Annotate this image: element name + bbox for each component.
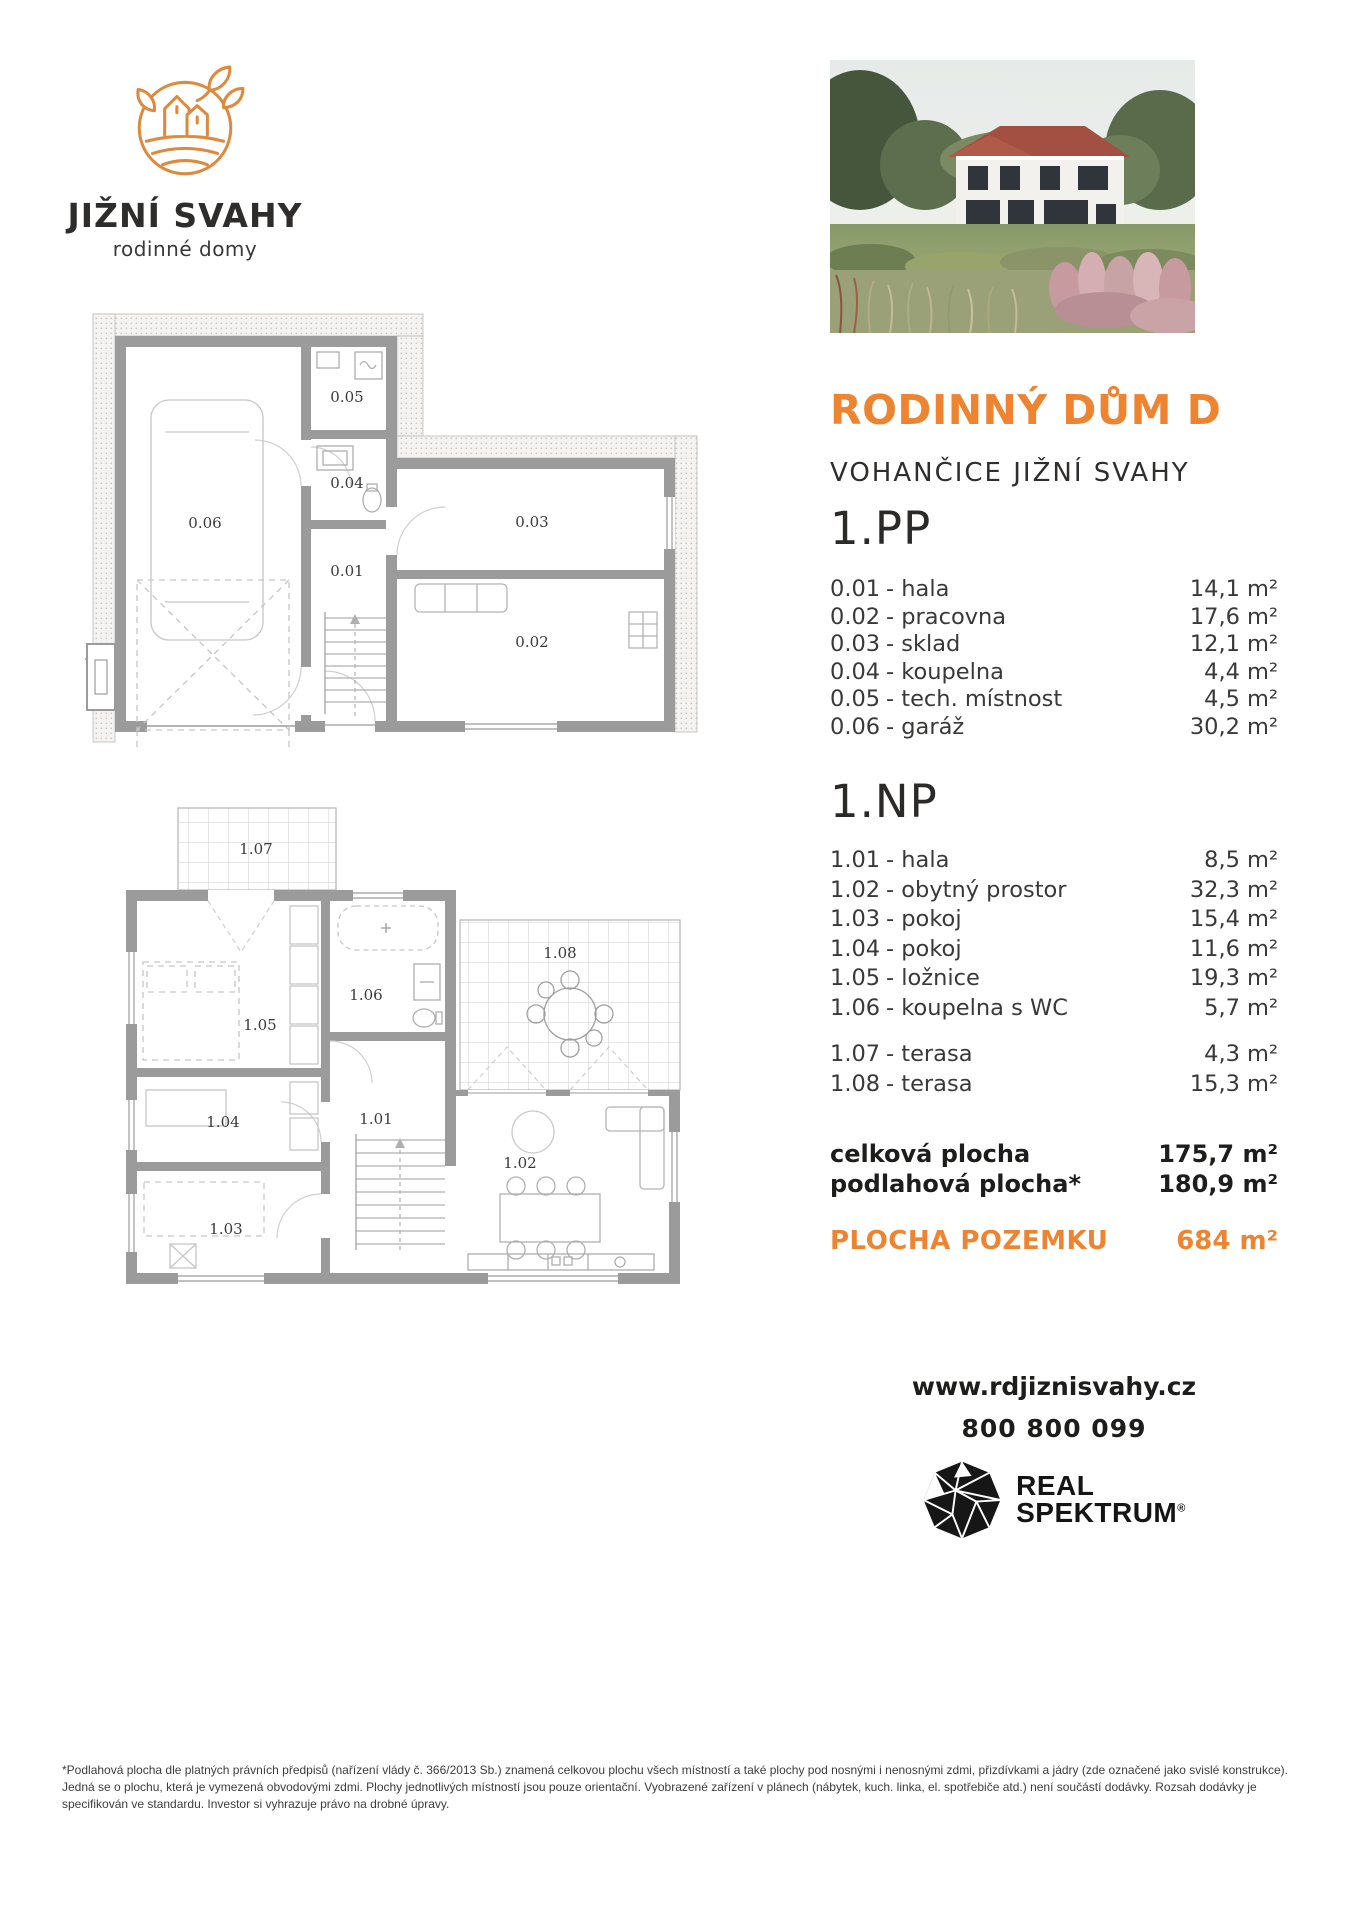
house-render (948, 126, 1130, 228)
openings (147, 440, 675, 732)
staircase-pp (325, 612, 386, 716)
room-area: 4,4 m² (1204, 659, 1278, 685)
room-code: 1.04 (830, 936, 886, 962)
room-row: 1.05- ložnice19,3 m² (830, 965, 1278, 995)
room-code: 1.01 (830, 847, 886, 873)
phone-number: 800 800 099 (830, 1414, 1278, 1443)
room-name: - hala (886, 847, 1204, 873)
room-code: 0.03 (830, 631, 886, 657)
toilet-icon (363, 484, 381, 512)
room-name: - ložnice (886, 965, 1190, 991)
total-area-row: celková plocha 175,7 m² (830, 1140, 1278, 1170)
room-area: 5,7 m² (1204, 995, 1278, 1021)
room-area: 4,5 m² (1204, 686, 1278, 712)
room-row: 1.08- terasa15,3 m² (830, 1071, 1278, 1101)
sofa-icon (606, 1107, 664, 1189)
registered-mark: ® (1177, 1503, 1186, 1515)
room-area: 30,2 m² (1190, 714, 1278, 740)
room-code: 1.06 (830, 995, 886, 1021)
plan-room-label: 0.03 (515, 513, 548, 531)
floor-heading-pp: 1.PP (830, 502, 1278, 555)
room-row: 1.06- koupelna s WC5,7 m² (830, 995, 1278, 1025)
totals-block: celková plocha 175,7 m² podlahová plocha… (830, 1140, 1278, 1200)
land-area-row: PLOCHA POZEMKU 684 m² (830, 1226, 1278, 1256)
room-area: 11,6 m² (1190, 936, 1278, 962)
room-row: 0.01- hala14,1 m² (830, 576, 1278, 604)
room-area: 15,4 m² (1190, 906, 1278, 932)
plan-room-label: 1.04 (206, 1113, 239, 1131)
toilet-icon (413, 1009, 442, 1027)
room-row: 1.04- pokoj11,6 m² (830, 936, 1278, 966)
desk-chair-icon (144, 1182, 264, 1268)
room-code: 0.04 (830, 659, 886, 685)
desk-icon (629, 612, 657, 648)
room-name: - koupelna s WC (886, 995, 1204, 1021)
pink-grass-plumes (1049, 252, 1195, 333)
room-name: - obytný prostor (886, 877, 1190, 903)
room-name: - pracovna (886, 604, 1190, 630)
sink-icon (317, 352, 339, 368)
plan-room-label: 0.05 (330, 388, 363, 406)
grade-line (85, 644, 115, 710)
room-code: 0.02 (830, 604, 886, 630)
website-link[interactable]: www.rdjiznisvahy.cz (830, 1372, 1278, 1401)
room-name: - hala (886, 576, 1190, 602)
floor-area-row: podlahová plocha* 180,9 m² (830, 1170, 1278, 1200)
room-area: 14,1 m² (1190, 576, 1278, 602)
footnote-text: *Podlahová plocha dle platných právních … (62, 1762, 1312, 1813)
room-row: 1.02- obytný prostor32,3 m² (830, 877, 1278, 907)
floor-area-value: 180,9 m² (1158, 1170, 1278, 1198)
room-row: 1.03- pokoj15,4 m² (830, 906, 1278, 936)
room-row: 1.01- hala8,5 m² (830, 847, 1278, 877)
realspektrum-polyhedron-icon (922, 1460, 1002, 1540)
room-row: 0.06- garáž30,2 m² (830, 714, 1278, 742)
plan-room-label: 1.06 (349, 986, 382, 1004)
land-area-value: 684 m² (1176, 1226, 1278, 1256)
room-name: - garáž (886, 714, 1190, 740)
floor-heading-np: 1.NP (830, 775, 1278, 828)
plan-room-label: 1.03 (209, 1220, 242, 1238)
plan-room-label: 1.02 (503, 1154, 536, 1172)
plan-room-label: 1.05 (243, 1016, 276, 1034)
room-name: - tech. místnost (886, 686, 1204, 712)
room-name: - koupelna (886, 659, 1204, 685)
brand-tagline: rodinné domy (58, 237, 312, 261)
room-row: 0.05- tech. místnost4,5 m² (830, 686, 1278, 714)
room-area: 4,3 m² (1204, 1041, 1278, 1067)
room-name: - terasa (886, 1041, 1204, 1067)
house-photo (830, 60, 1195, 333)
land-area-label: PLOCHA POZEMKU (830, 1226, 1176, 1256)
room-row: 0.03- sklad12,1 m² (830, 631, 1278, 659)
plan-room-label: 1.08 (543, 944, 576, 962)
agency-name-line2: SPEKTRUM® (1016, 1500, 1186, 1527)
room-area: 32,3 m² (1190, 877, 1278, 903)
floor-area-label: podlahová plocha* (830, 1170, 1158, 1198)
brand-logo-icon (124, 64, 246, 186)
agency-name-line1: REAL (1016, 1473, 1186, 1500)
bed-icon (143, 962, 239, 1060)
room-row: 1.07- terasa4,3 m² (830, 1041, 1278, 1071)
brochure-page: JIŽNÍ SVAHY rodinné domy (0, 0, 1358, 1920)
room-list-pp: 0.01- hala14,1 m² 0.02- pracovna17,6 m² … (830, 576, 1278, 741)
floorplan-pp: 0.06 0.05 0.04 0.01 0.03 0.02 (85, 312, 703, 752)
room-code: 0.06 (830, 714, 886, 740)
room-code: 1.02 (830, 877, 886, 903)
room-list-np: 1.01- hala8,5 m² 1.02- obytný prostor32,… (830, 847, 1278, 1024)
room-name: - pokoj (886, 936, 1190, 962)
room-row: 0.04- koupelna4,4 m² (830, 659, 1278, 687)
room-code: 1.07 (830, 1041, 886, 1067)
room-code: 1.05 (830, 965, 886, 991)
room-area: 17,6 m² (1190, 604, 1278, 630)
plan-room-label: 0.02 (515, 633, 548, 651)
rug-icon (512, 1111, 554, 1153)
room-name: - terasa (886, 1071, 1190, 1097)
plan-room-label: 0.06 (188, 514, 221, 532)
brand-block: JIŽNÍ SVAHY rodinné domy (58, 64, 312, 261)
room-row: 0.02- pracovna17,6 m² (830, 604, 1278, 632)
bath-sink-icon (414, 964, 440, 1000)
agency-logo: REAL SPEKTRUM® (830, 1460, 1278, 1540)
room-area: 19,3 m² (1190, 965, 1278, 991)
staircase-np (356, 1134, 445, 1250)
room-code: 0.05 (830, 686, 886, 712)
room-area: 12,1 m² (1190, 631, 1278, 657)
plan-room-label: 1.07 (239, 840, 272, 858)
room-code: 1.08 (830, 1071, 886, 1097)
room-name: - pokoj (886, 906, 1190, 932)
total-area-label: celková plocha (830, 1140, 1158, 1168)
wardrobe-icon (290, 906, 318, 1064)
room-area: 15,3 m² (1190, 1071, 1278, 1097)
room-code: 0.01 (830, 576, 886, 602)
agency-name: REAL SPEKTRUM® (1016, 1473, 1186, 1526)
total-area-value: 175,7 m² (1158, 1140, 1278, 1168)
room-area: 8,5 m² (1204, 847, 1278, 873)
plan-room-label: 0.01 (330, 562, 363, 580)
kitchen-line-icon (468, 1254, 654, 1270)
room-name: - sklad (886, 631, 1190, 657)
floorplan-np: 1.07 1.05 1.06 1.08 1.01 1.04 1.03 1.02 (108, 802, 704, 1296)
washing-machine-icon (355, 352, 382, 379)
terrace-list-np: 1.07- terasa4,3 m² 1.08- terasa15,3 m² (830, 1041, 1278, 1100)
brand-name: JIŽNÍ SVAHY (58, 196, 312, 235)
bathroom-sink-icon (317, 446, 353, 470)
sofa-icon (415, 584, 507, 612)
plan-room-label: 0.04 (330, 474, 363, 492)
dining-table-icon (500, 1177, 600, 1259)
page-subtitle: VOHANČICE JIŽNÍ SVAHY (830, 458, 1278, 488)
plan-room-label: 1.01 (359, 1110, 392, 1128)
page-title: RODINNÝ DŮM D (830, 386, 1278, 434)
room-code: 1.03 (830, 906, 886, 932)
